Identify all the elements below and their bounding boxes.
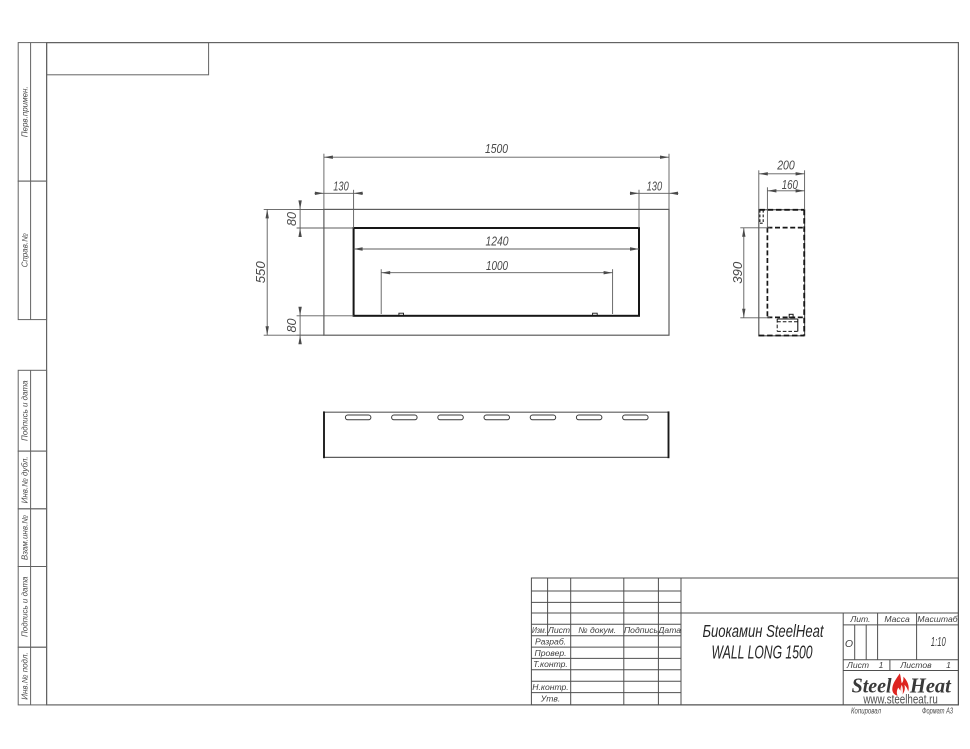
svg-text:Подпись и дата: Подпись и дата [21,576,30,637]
svg-text:Инв.№ подл.: Инв.№ подл. [21,652,30,699]
svg-text:www.steelheat.ru: www.steelheat.ru [863,692,938,706]
svg-text:Масса: Масса [884,614,910,624]
svg-text:550: 550 [253,261,268,284]
svg-text:1: 1 [879,660,884,670]
svg-text:1500: 1500 [485,141,509,156]
svg-text:Биокамин SteelHeat: Биокамин SteelHeat [703,621,825,641]
svg-text:130: 130 [647,178,663,193]
svg-text:Лист: Лист [547,625,570,635]
svg-text:Формат А3: Формат А3 [922,707,953,716]
svg-text:80: 80 [284,211,299,226]
svg-text:О: О [845,638,853,650]
svg-text:Н.контр.: Н.контр. [532,682,568,692]
svg-text:80: 80 [284,318,299,333]
svg-text:Перв.примен.: Перв.примен. [20,86,29,137]
svg-text:390: 390 [730,261,745,284]
svg-text:130: 130 [333,178,349,193]
svg-text:Лист: Лист [846,660,869,670]
svg-text:Лит.: Лит. [849,614,870,624]
svg-text:Масштаб: Масштаб [917,614,958,624]
svg-text:Провер.: Провер. [534,648,566,658]
svg-text:Взам.инв.№: Взам.инв.№ [21,515,30,560]
svg-text:Листов: Листов [899,660,932,670]
svg-text:200: 200 [776,158,795,173]
svg-text:Утв.: Утв. [540,693,561,703]
svg-text:Подпись и дата: Подпись и дата [20,380,29,441]
svg-text:1000: 1000 [486,258,509,273]
svg-text:Дата: Дата [657,625,681,635]
svg-text:Справ.№: Справ.№ [20,233,29,267]
svg-text:№ докум.: № докум. [578,625,616,635]
svg-text:Подпись: Подпись [624,625,659,635]
svg-text:1:10: 1:10 [931,635,946,649]
svg-text:160: 160 [782,177,799,192]
svg-text:Т.контр.: Т.контр. [533,659,568,669]
svg-text:Копировал: Копировал [851,707,881,716]
svg-text:Инв.№ дубл.: Инв.№ дубл. [21,456,30,503]
svg-text:1: 1 [946,660,951,670]
svg-text:WALL LONG 1500: WALL LONG 1500 [712,643,813,663]
svg-text:1240: 1240 [486,234,510,249]
svg-text:Изм.: Изм. [532,625,547,635]
svg-text:Разраб.: Разраб. [535,636,566,646]
